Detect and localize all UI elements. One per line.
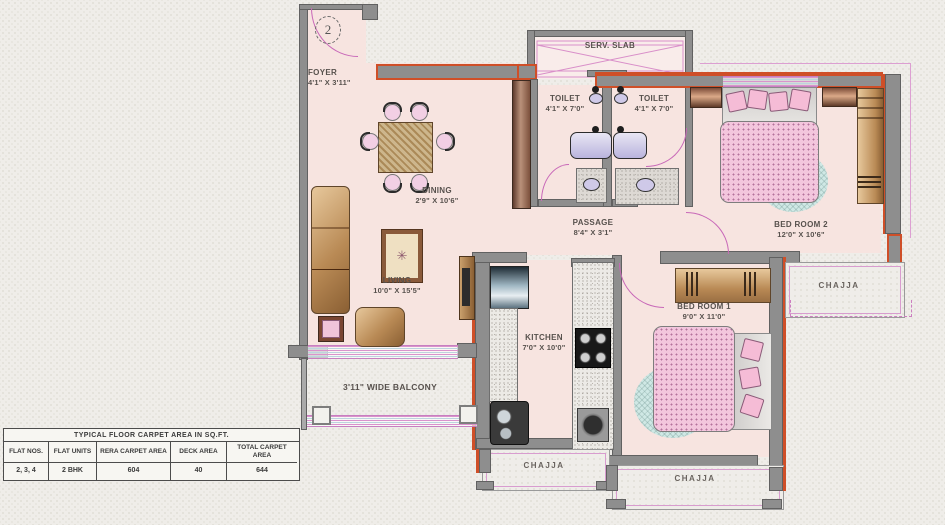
table-value-deck-area: 40 — [171, 463, 227, 480]
bedroom1-pillow — [738, 366, 761, 389]
toilet-tap — [617, 86, 624, 93]
carpet-medallion: ✳ — [397, 248, 408, 264]
toilet2-wc — [613, 132, 647, 159]
label-dining: DINING 2'9" X 10'6" — [402, 186, 472, 206]
wall-foyer-right-pillar — [362, 4, 378, 20]
label-chajja-bottom-left: CHAJJA — [513, 461, 575, 471]
dining-table — [378, 122, 433, 173]
table-header-total-carpet-area: TOTAL CARPET AREA — [227, 442, 297, 463]
carpet-area-table-title: TYPICAL FLOOR CARPET AREA IN SQ.FT. — [4, 429, 299, 442]
wall-dining-top — [376, 64, 536, 80]
bedroom2-window — [723, 76, 818, 87]
bedroom2-name: BED ROOM 2 — [756, 220, 846, 230]
chajja-stub — [769, 467, 786, 491]
kitchen-name: KITCHEN — [504, 333, 584, 343]
tv-screen — [462, 268, 470, 306]
bedroom1-dims: 9'0" X 11'0" — [659, 312, 749, 322]
toilet-tap — [592, 86, 599, 93]
toilet1-wc — [570, 132, 612, 159]
chajja-bottom-left-name: CHAJJA — [513, 461, 575, 471]
sofa — [311, 186, 350, 314]
label-serv-slab: SERV. SLAB — [560, 41, 660, 51]
toilet2-shower-drain — [636, 178, 655, 192]
passage-dims: 8'4" X 3'1" — [553, 228, 633, 238]
balcony-parapet — [307, 415, 477, 427]
label-passage: PASSAGE 8'4" X 3'1" — [553, 218, 633, 238]
dining-chair — [411, 104, 428, 121]
bedroom1-bed — [653, 326, 735, 432]
dining-chair — [436, 133, 453, 150]
toilet2-dims: 4'1" X 7'0" — [623, 104, 685, 114]
bedroom2-pillow — [768, 91, 789, 112]
chajja-stub — [762, 499, 782, 509]
toilet1-name: TOILET — [534, 94, 596, 104]
table-value-flat-units: 2 BHK — [49, 463, 97, 480]
balcony-column — [312, 406, 331, 425]
kitchen-sink — [577, 408, 609, 442]
table-header-rera-carpet-area: RERA CARPET AREA — [97, 442, 171, 463]
wall-toilet-left-top-stub — [517, 64, 537, 80]
dining-chair — [384, 104, 401, 121]
toilet1-shower-drain — [583, 178, 600, 191]
label-toilet2: TOILET 4'1" X 7'0" — [623, 94, 685, 114]
bedroom2-lintel-right — [822, 87, 857, 107]
table-header-deck-area: DECK AREA — [171, 442, 227, 463]
bedroom2-dims: 12'0" X 10'6" — [756, 230, 846, 240]
label-bedroom1: BED ROOM 1 9'0" X 11'0" — [659, 302, 749, 322]
fridge — [490, 266, 529, 309]
balcony-name: 3'11" WIDE BALCONY — [320, 382, 460, 393]
chajja-right-dashed — [790, 300, 912, 317]
duct-wall — [512, 80, 531, 209]
toilet-tap — [592, 126, 599, 133]
serv-slab-name: SERV. SLAB — [560, 41, 660, 51]
carpet-area-table-grid: FLAT NOS. FLAT UNITS RERA CARPET AREA DE… — [4, 442, 299, 480]
bedroom1-name: BED ROOM 1 — [659, 302, 749, 312]
side-table-top — [322, 320, 340, 338]
living-balcony-window — [308, 345, 458, 359]
living-carpet: ✳ — [382, 230, 422, 282]
carpet-area-table: TYPICAL FLOOR CARPET AREA IN SQ.FT. FLAT… — [3, 428, 300, 481]
living-dims: 10'0" X 15'5" — [357, 286, 437, 296]
dining-dims: 2'9" X 10'6" — [402, 196, 472, 206]
living-name: LIVING — [357, 276, 437, 286]
wall-serv-top — [527, 30, 693, 37]
chajja-stub — [606, 499, 626, 509]
chajja-stub — [476, 481, 494, 490]
label-foyer: FOYER 4'1" X 3'11" — [308, 68, 386, 88]
label-living: LIVING 10'0" X 15'5" — [357, 276, 437, 296]
table-header-flat-nos: FLAT NOS. — [4, 442, 49, 463]
label-kitchen: KITCHEN 7'0" X 10'0" — [504, 333, 584, 353]
bedroom2-lintel-left — [690, 87, 722, 108]
chajja-stub — [606, 465, 618, 491]
passage-name: PASSAGE — [553, 218, 633, 228]
chajja-bottom-right — [612, 465, 784, 510]
kitchen-dims: 7'0" X 10'0" — [504, 343, 584, 353]
kitchen-counter-left — [489, 308, 518, 402]
label-toilet1: TOILET 4'1" X 7'0" — [534, 94, 596, 114]
wall-left-main — [299, 4, 308, 360]
bedroom2-bed — [720, 121, 819, 203]
toilet-tap — [617, 126, 624, 133]
wall-kitchen-top-left — [472, 252, 527, 263]
floor-plan-canvas: 2 ✳ — [0, 0, 945, 525]
flat-number-circle: 2 — [315, 16, 341, 44]
dining-chair — [362, 133, 379, 150]
table-header-flat-units: FLAT UNITS — [49, 442, 97, 463]
label-balcony: 3'11" WIDE BALCONY — [320, 382, 460, 393]
bedroom1-wardrobe-handle — [744, 272, 756, 296]
bedroom2-pillow — [747, 89, 768, 110]
table-value-total-carpet-area: 644 — [227, 463, 297, 480]
label-chajja-right: CHAJJA — [808, 281, 870, 291]
dining-name: DINING — [402, 186, 472, 196]
chajja-bottom-right-name: CHAJJA — [664, 474, 726, 484]
chajja-stub — [476, 449, 491, 473]
toilet1-dims: 4'1" X 7'0" — [534, 104, 596, 114]
bedroom2-pillow — [725, 90, 748, 113]
bedroom2-wardrobe-lines — [858, 176, 881, 190]
flat-number: 2 — [325, 22, 332, 38]
bedroom2-pillow — [788, 88, 811, 111]
dining-chair — [384, 174, 401, 191]
foyer-name: FOYER — [308, 68, 386, 78]
label-chajja-bottom-right: CHAJJA — [664, 474, 726, 484]
table-value-flat-nos: 2, 3, 4 — [4, 463, 49, 480]
chajja-right-name: CHAJJA — [808, 281, 870, 291]
table-value-rera-carpet-area: 604 — [97, 463, 171, 480]
foyer-dims: 4'1" X 3'11" — [308, 78, 386, 88]
label-bedroom2: BED ROOM 2 12'0" X 10'6" — [756, 220, 846, 240]
balcony-column — [459, 405, 478, 424]
washing-machine — [490, 401, 529, 445]
wall-balcony-stub-right — [457, 343, 477, 358]
bedroom1-wardrobe-handle — [686, 272, 698, 296]
toilet2-name: TOILET — [623, 94, 685, 104]
armchair — [355, 307, 405, 347]
